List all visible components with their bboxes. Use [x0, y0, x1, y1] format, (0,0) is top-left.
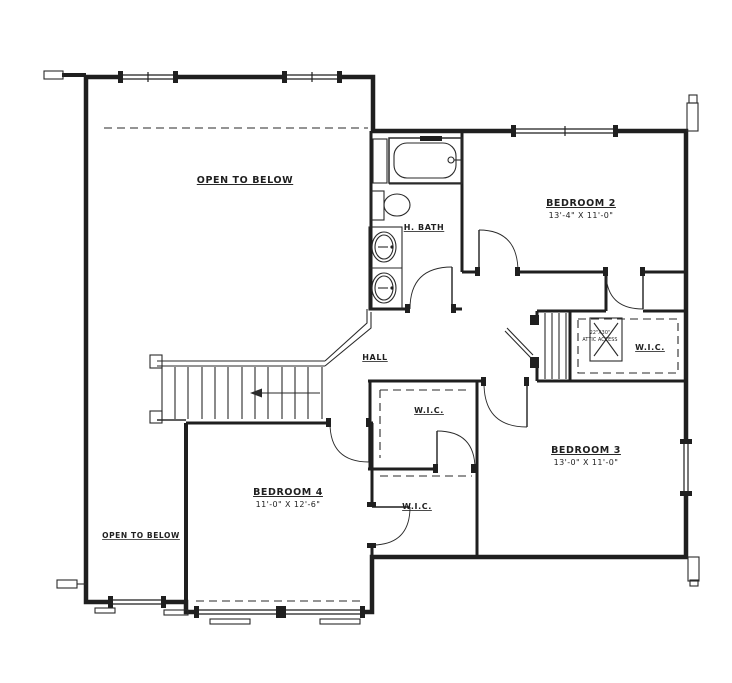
label-wic-right: W.I.C. — [635, 343, 665, 352]
window-bedroom2 — [511, 125, 618, 137]
dims-bedroom3: 13'-0" X 11'-0" — [554, 458, 619, 467]
label-hall: HALL — [362, 353, 387, 362]
dims-bedroom4: 11'-0" X 12'-6" — [256, 500, 321, 509]
label-open-below-bottom: OPEN TO BELOW — [102, 531, 180, 540]
dims-bedroom2: 13'-4" X 11'-0" — [549, 211, 614, 220]
window-top-left — [118, 71, 178, 83]
floor-plan-drawing: OPEN TO BELOW H. BATH BEDROOM 2 13'-4" X… — [0, 0, 732, 683]
label-bedroom2: BEDROOM 2 — [546, 198, 616, 209]
sink-2-faucet — [390, 286, 393, 289]
label-attic-access: ATTIC ACCESS — [582, 337, 617, 343]
label-wic-center: W.I.C. — [414, 406, 444, 415]
label-h-bath: H. BATH — [404, 223, 445, 232]
label-bedroom4: BEDROOM 4 — [253, 487, 323, 498]
floor-plan-page: OPEN TO BELOW H. BATH BEDROOM 2 13'-4" X… — [0, 0, 732, 683]
label-bedroom3: BEDROOM 3 — [551, 445, 621, 456]
window-top-left2 — [282, 71, 342, 83]
window-bedroom3 — [680, 439, 692, 496]
bathtub-ledge — [420, 136, 442, 141]
label-open-below-top: OPEN TO BELOW — [197, 175, 293, 186]
sink-1-faucet — [390, 245, 393, 248]
label-wic-lower: W.I.C. — [402, 502, 432, 511]
label-attic-size: 22"X30" — [590, 330, 611, 336]
